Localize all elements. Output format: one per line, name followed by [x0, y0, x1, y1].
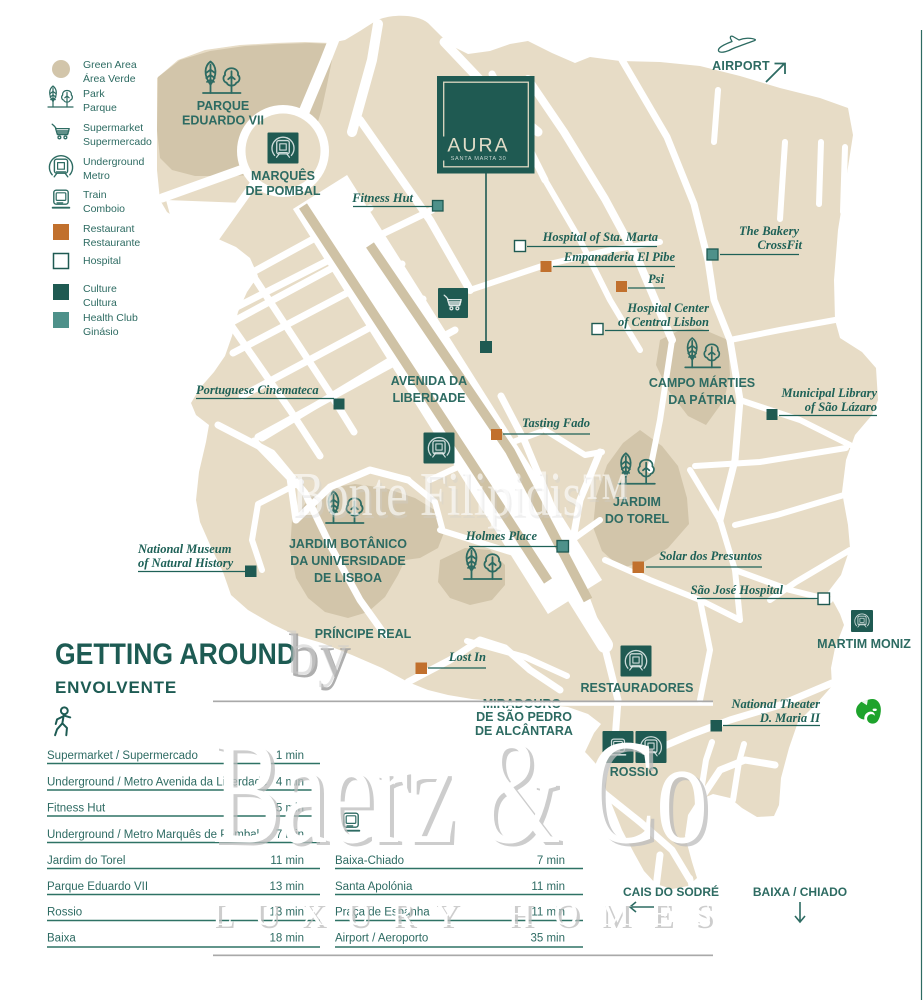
svg-text:of Natural History: of Natural History [138, 556, 234, 570]
svg-text:The Bakery: The Bakery [739, 224, 800, 238]
svg-text:DE POMBAL: DE POMBAL [246, 184, 321, 198]
svg-text:Hospital of Sta. Marta: Hospital of Sta. Marta [542, 230, 658, 244]
svg-text:JARDIM BOTÂNICO: JARDIM BOTÂNICO [289, 536, 407, 551]
svg-text:11 min: 11 min [531, 881, 565, 893]
svg-text:Hospital: Hospital [83, 255, 121, 267]
svg-text:of Central Lisbon: of Central Lisbon [618, 315, 709, 329]
svg-text:Cultura: Cultura [83, 297, 117, 309]
svg-text:Solar dos Presuntos: Solar dos Presuntos [659, 549, 762, 563]
svg-text:SANTA MARTA 30: SANTA MARTA 30 [451, 156, 507, 162]
svg-text:RESTAURADORES: RESTAURADORES [581, 681, 694, 695]
svg-text:Área Verde: Área Verde [83, 72, 136, 85]
svg-text:Metro: Metro [83, 170, 110, 182]
svg-text:Fitness Hut: Fitness Hut [351, 191, 413, 205]
svg-text:Municipal Library: Municipal Library [781, 386, 878, 400]
svg-text:Supermercado: Supermercado [83, 136, 152, 148]
svg-text:Supermarket / Supermercado: Supermarket / Supermercado [47, 750, 198, 762]
svg-text:Portuguese Cinemateca: Portuguese Cinemateca [196, 383, 319, 397]
svg-text:Jardim do Torel: Jardim do Torel [47, 855, 125, 867]
svg-text:Train: Train [83, 189, 107, 201]
svg-text:Parque: Parque [83, 102, 117, 114]
svg-text:Ginásio: Ginásio [83, 326, 119, 338]
svg-text:DE LISBOA: DE LISBOA [314, 571, 382, 585]
svg-text:Underground: Underground [83, 156, 144, 168]
svg-text:13 min: 13 min [269, 881, 304, 893]
svg-text:Supermarket: Supermarket [83, 122, 143, 134]
svg-text:Comboio: Comboio [83, 203, 125, 215]
svg-text:LIBERDADE: LIBERDADE [393, 391, 466, 405]
svg-text:CAMPO MÁRTIES: CAMPO MÁRTIES [649, 375, 755, 390]
svg-text:Baixa: Baixa [47, 933, 76, 945]
svg-text:MARTIM MONIZ: MARTIM MONIZ [817, 637, 911, 651]
svg-text:EDUARDO VII: EDUARDO VII [182, 114, 264, 128]
svg-text:Tasting Fado: Tasting Fado [522, 416, 590, 430]
svg-text:PARQUE: PARQUE [197, 99, 250, 113]
svg-text:DA UNIVERSIDADE: DA UNIVERSIDADE [290, 554, 406, 568]
svg-text:National Museum: National Museum [137, 542, 232, 556]
svg-text:Green Area: Green Area [83, 59, 137, 71]
svg-text:Health Club: Health Club [83, 312, 138, 324]
svg-text:MARQUÊS: MARQUÊS [251, 168, 315, 183]
svg-text:Psi: Psi [648, 272, 665, 286]
svg-text:Empanaderia El Pibe: Empanaderia El Pibe [563, 250, 676, 264]
svg-text:by: by [287, 620, 349, 688]
svg-text:AURA: AURA [447, 135, 509, 157]
svg-text:Culture: Culture [83, 283, 117, 295]
svg-text:Hospital Center: Hospital Center [626, 301, 709, 315]
svg-text:Parque Eduardo VII: Parque Eduardo VII [47, 881, 148, 893]
svg-text:DA PÁTRIA: DA PÁTRIA [668, 392, 736, 407]
svg-text:CrossFit: CrossFit [758, 238, 803, 252]
svg-text:Baerz & Co: Baerz & Co [212, 709, 708, 875]
svg-text:of São Lázaro: of São Lázaro [805, 400, 877, 414]
svg-text:ENVOLVENTE: ENVOLVENTE [55, 678, 177, 697]
svg-text:Bonte Filipidis™: Bonte Filipidis™ [292, 461, 629, 529]
svg-text:National Theater: National Theater [730, 697, 820, 711]
svg-text:AIRPORT: AIRPORT [712, 59, 770, 73]
svg-text:Restaurante: Restaurante [83, 237, 140, 249]
svg-text:D. Maria II: D. Maria II [759, 711, 821, 725]
svg-text:São José Hospital: São José Hospital [691, 583, 784, 597]
svg-text:Park: Park [83, 88, 105, 100]
svg-text:GETTING AROUND: GETTING AROUND [55, 638, 296, 671]
svg-text:Restaurant: Restaurant [83, 223, 134, 235]
svg-text:Fitness Hut: Fitness Hut [47, 803, 106, 815]
svg-text:Rossio: Rossio [47, 907, 82, 919]
svg-text:BAIXA / CHIADO: BAIXA / CHIADO [753, 885, 847, 899]
svg-text:Lost In: Lost In [448, 650, 486, 664]
svg-text:Santa Apolónia: Santa Apolónia [335, 881, 413, 893]
svg-text:AVENIDA DA: AVENIDA DA [391, 374, 467, 388]
